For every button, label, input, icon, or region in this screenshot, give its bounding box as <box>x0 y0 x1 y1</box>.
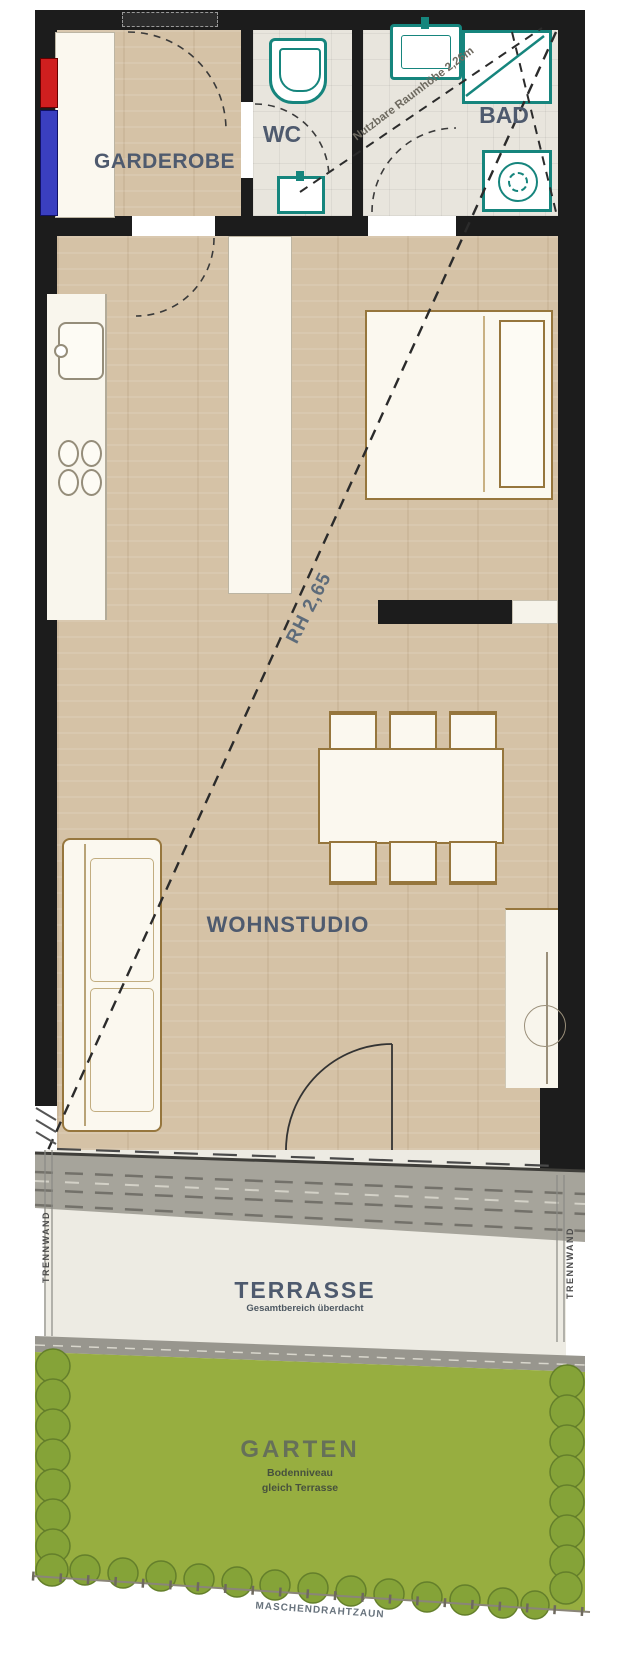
entry-niche <box>122 12 218 27</box>
partition-left-label: TRENNWAND <box>41 1158 51 1336</box>
burner-icon <box>81 469 102 496</box>
wall-garderobe-wc-lower <box>241 178 253 216</box>
washing-machine-inner-icon <box>508 172 528 192</box>
garten-subtitle-line2: gleich Terrasse <box>200 1483 400 1495</box>
kitchen-cooktop <box>56 438 104 498</box>
wall-wc-bad <box>352 30 363 216</box>
wall-top <box>35 10 585 30</box>
toilet-bowl-icon <box>279 48 321 92</box>
closet <box>228 236 292 594</box>
wardrobe <box>55 32 115 218</box>
sofa-back-line <box>84 844 86 1126</box>
handbasin-tap-icon <box>296 171 304 181</box>
wall-mid-a <box>35 216 132 236</box>
burner-icon <box>81 440 102 467</box>
wall-garderobe-wc-upper <box>241 30 253 102</box>
wall-niche <box>512 600 558 624</box>
wc-label: WC <box>252 122 312 147</box>
wall-right <box>558 10 585 1175</box>
riser-red-marker <box>40 58 58 108</box>
washing-machine-icon <box>482 150 552 212</box>
sofa-cushion <box>90 988 154 1112</box>
floor-plan: GARDEROBE WC BAD WOHNSTUDIO TERRASSE Ges… <box>0 0 622 1653</box>
bad-label: BAD <box>468 103 540 128</box>
bed-pillow <box>499 320 545 488</box>
sideboard-circle <box>524 1005 566 1047</box>
dining-chair <box>329 841 377 885</box>
garten-label: GARTEN <box>200 1437 400 1463</box>
wohnstudio-label: WOHNSTUDIO <box>178 913 398 937</box>
garten-subtitle-line1: Bodenniveau <box>200 1468 400 1480</box>
wall-mid-c <box>456 216 585 236</box>
terrasse-label: TERRASSE <box>205 1278 405 1303</box>
wall-mid-b <box>215 216 368 236</box>
terrasse-subtitle: Gesamtbereich überdacht <box>185 1304 425 1314</box>
bed <box>365 310 553 500</box>
riser-blue-marker <box>40 110 58 216</box>
washbasin-tap-icon <box>421 17 429 29</box>
wall-section-hatch <box>36 1108 56 1144</box>
sofa-cushion <box>90 858 154 982</box>
floor-terrasse <box>44 1150 566 1356</box>
toilet-icon <box>269 38 327 104</box>
sideboard <box>505 908 558 1088</box>
burner-icon <box>58 440 79 467</box>
kitchen-faucet <box>54 344 68 358</box>
fence-label: MASCHENDRAHTZAUN <box>215 1598 425 1624</box>
dining-chair <box>449 841 497 885</box>
garderobe-label: GARDEROBE <box>72 150 257 173</box>
bed-blanket-line <box>483 316 485 492</box>
burner-icon <box>58 469 79 496</box>
dining-table <box>318 748 504 844</box>
partition-right-label: TRENNWAND <box>565 1178 575 1348</box>
handbasin-icon <box>277 176 325 214</box>
sofa <box>62 838 162 1132</box>
wall-corner-bottom-right <box>540 1085 585 1177</box>
dining-chair <box>389 841 437 885</box>
wall-stub-right <box>378 600 512 624</box>
